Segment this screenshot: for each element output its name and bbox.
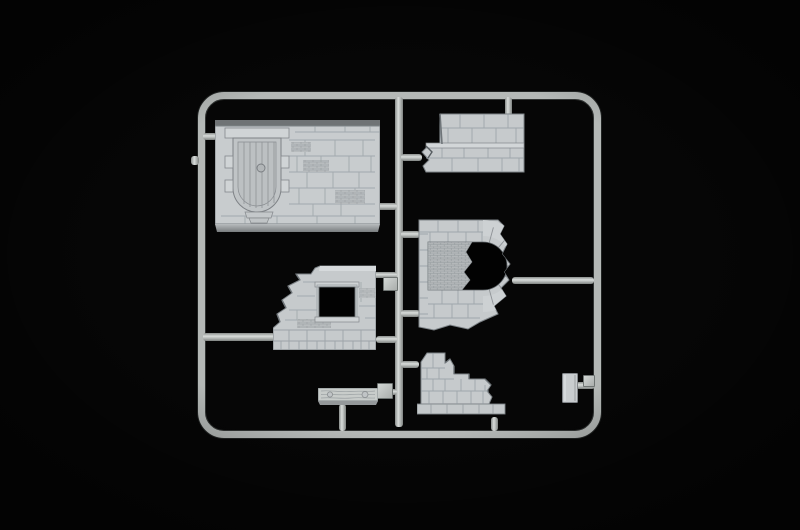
gate-brokenwall-bottom	[491, 417, 498, 431]
runner-left-rail-to-windowwall	[203, 333, 275, 341]
part-corner-wall	[420, 112, 525, 174]
part-plank	[318, 388, 378, 405]
gate-doorwall-right	[377, 203, 397, 210]
part-broken-wall	[417, 348, 507, 418]
gate-plank-bottom	[339, 404, 346, 431]
tag-plank	[377, 383, 393, 399]
tag-slab	[583, 375, 595, 387]
runner-center-vertical	[395, 97, 403, 427]
nub-left-rail	[191, 156, 199, 165]
tag-windowwall	[383, 277, 398, 291]
part-slab	[562, 373, 579, 403]
gate-windowwall-bottom-right	[376, 336, 397, 343]
sprue-photo	[0, 0, 800, 530]
runner-archwall-to-right-rail	[512, 277, 594, 284]
part-arch-wall	[418, 214, 522, 332]
gate-cornerwall-left	[401, 154, 422, 161]
part-window-wall	[273, 262, 376, 350]
part-door-wall	[215, 120, 380, 232]
